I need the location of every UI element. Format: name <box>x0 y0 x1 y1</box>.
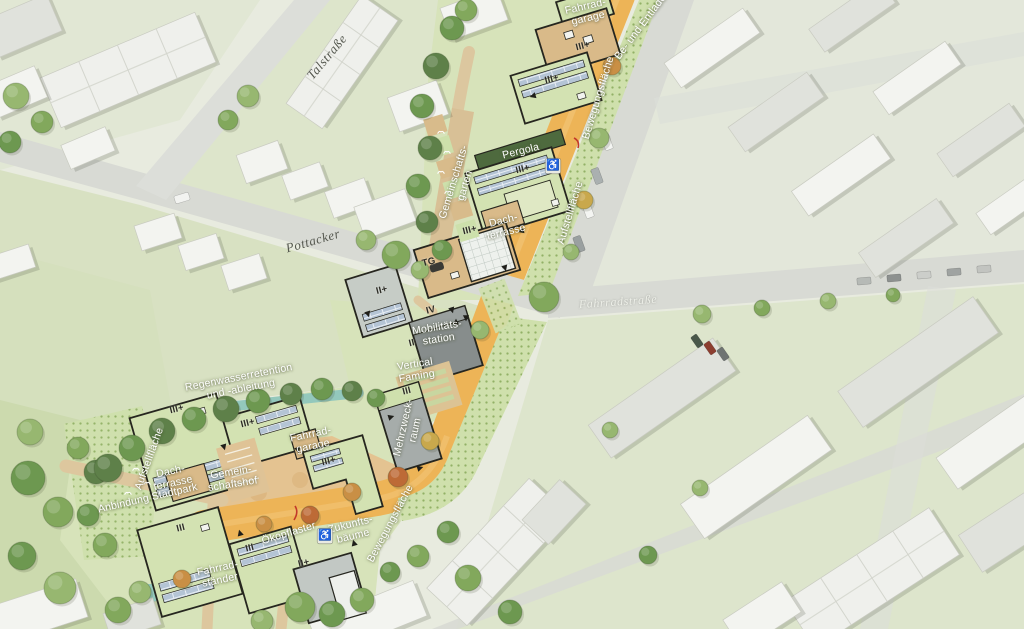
parked-car <box>947 268 962 276</box>
site-plan: TalstraßePottackerFahrradstraßeFahrrad- … <box>0 0 1024 629</box>
parked-car <box>857 277 872 285</box>
site-plan-artwork <box>0 0 1024 629</box>
parked-car <box>887 274 902 282</box>
parked-car <box>917 271 932 279</box>
parked-car <box>977 265 992 273</box>
